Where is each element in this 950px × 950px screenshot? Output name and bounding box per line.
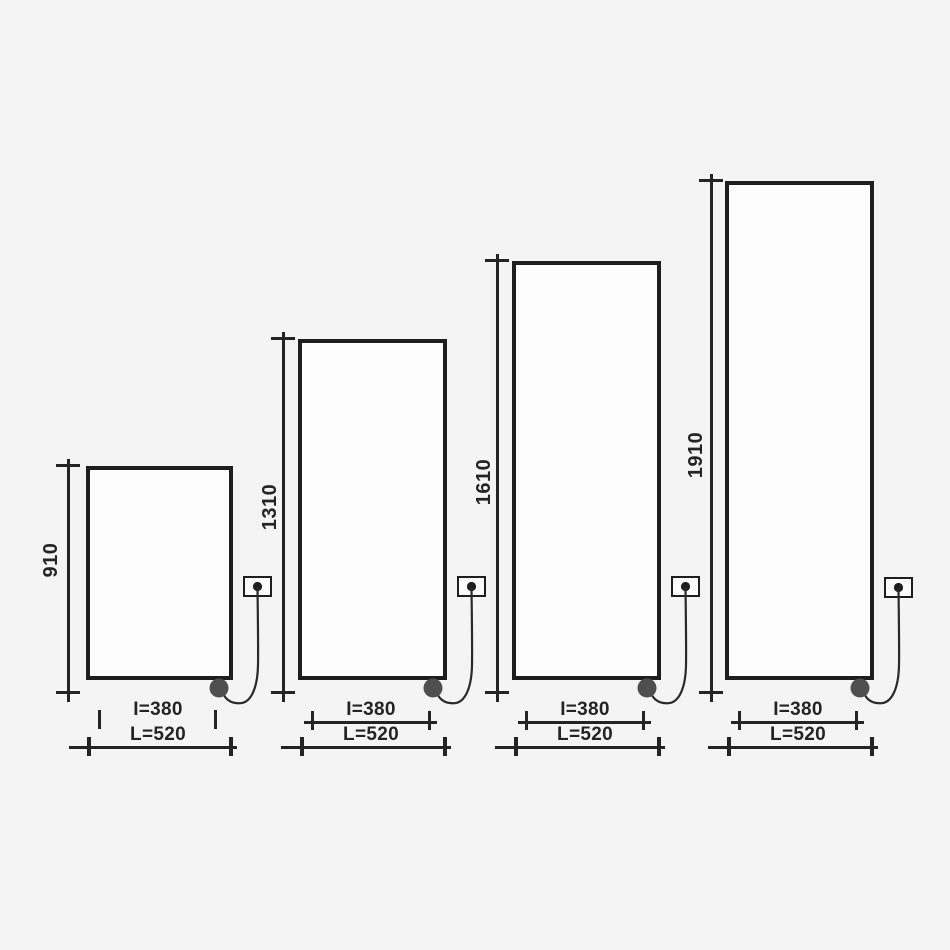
inner-width-label: I=380	[311, 699, 431, 721]
outer-width-tick-left	[300, 737, 304, 756]
dimension-tick-top	[56, 464, 80, 467]
outer-width-label: L=520	[98, 724, 218, 746]
height-label: 1610	[472, 437, 496, 527]
height-label: 1910	[684, 410, 708, 500]
outer-width-label: L=520	[311, 724, 431, 746]
outer-width-dimension-line	[281, 746, 451, 749]
wall-socket	[671, 576, 700, 597]
outer-width-tick-left	[514, 737, 518, 756]
outer-width-dimension-line	[69, 746, 237, 749]
outer-width-tick-right	[229, 737, 233, 756]
radiator-dimension-diagram: 910 I=380 L=520 1310 I=380 L=520 1610 I=…	[0, 0, 950, 950]
outer-width-tick-left	[727, 737, 731, 756]
inner-width-label: I=380	[98, 699, 218, 721]
outer-width-tick-left	[87, 737, 91, 756]
cable-plug	[210, 679, 229, 698]
wall-socket	[243, 576, 272, 597]
wall-socket	[457, 576, 486, 597]
outer-width-dimension-line	[495, 746, 665, 749]
height-dimension-line	[282, 332, 285, 702]
height-dimension-line	[496, 254, 499, 702]
radiator-panel	[512, 261, 661, 680]
dimension-tick-top	[485, 259, 509, 262]
outer-width-label: L=520	[738, 724, 858, 746]
dimension-tick-bottom	[699, 691, 723, 694]
radiator-panel	[725, 181, 874, 680]
dimension-tick-bottom	[56, 691, 80, 694]
inner-width-label: I=380	[525, 699, 645, 721]
inner-width-label: I=380	[738, 699, 858, 721]
outer-width-tick-right	[443, 737, 447, 756]
cable-plug	[851, 679, 870, 698]
dimension-tick-top	[699, 179, 723, 182]
wall-socket	[884, 577, 913, 598]
height-label: 1310	[258, 462, 282, 552]
outer-width-dimension-line	[708, 746, 878, 749]
radiator-panel	[298, 339, 447, 680]
radiator-panel	[86, 466, 233, 680]
dimension-tick-top	[271, 337, 295, 340]
dimension-tick-bottom	[271, 691, 295, 694]
height-dimension-line	[67, 459, 70, 702]
height-dimension-line	[710, 174, 713, 702]
outer-width-label: L=520	[525, 724, 645, 746]
outer-width-tick-right	[870, 737, 874, 756]
height-label: 910	[39, 515, 63, 605]
cable-plug	[424, 679, 443, 698]
dimension-tick-bottom	[485, 691, 509, 694]
outer-width-tick-right	[657, 737, 661, 756]
cable-plug	[638, 679, 657, 698]
